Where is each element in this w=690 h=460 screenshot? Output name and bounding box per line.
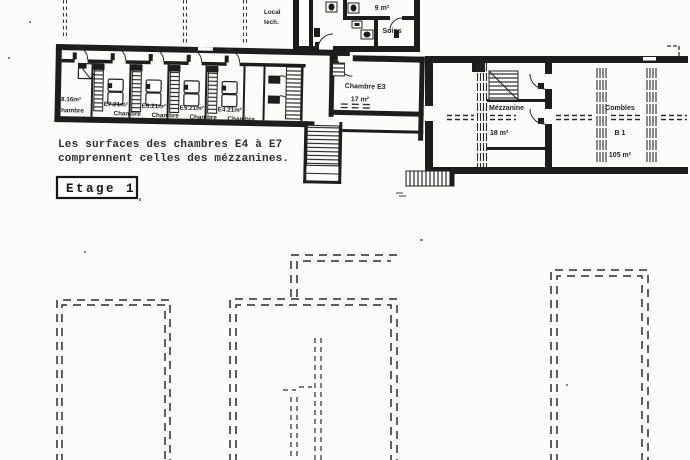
door-opening	[425, 106, 433, 121]
room-9m2-area-label: 9 m²	[375, 5, 390, 12]
room-e8-area-label: E8.16m²	[57, 96, 81, 104]
column-strip	[597, 68, 656, 163]
tie-dashes	[447, 116, 516, 120]
lower-roof-plan	[57, 255, 648, 460]
note-text: Les surfaces des chambres E4 à E7 compre…	[58, 139, 289, 165]
scanned-floorplan-page: Local tech.	[0, 0, 690, 460]
toilet-icon	[348, 3, 359, 13]
roof-outline-right-outer	[551, 270, 648, 460]
room-e5-area-label: E5.21m²	[180, 105, 204, 113]
room-e7-area-label: E7.21m²	[104, 101, 128, 109]
note-line-1: Les surfaces des chambres E4 à E7	[58, 139, 282, 151]
sink-icon	[352, 21, 362, 28]
sanitary-block: 9 m² Soins	[293, 0, 420, 52]
reference-dashed-lines	[64, 0, 247, 45]
local-tech-label-line2: tech.	[264, 19, 279, 26]
local-tech-room: Local tech.	[264, 9, 281, 26]
toilet-icon	[361, 30, 373, 39]
roof-outline-mid-projection-inner	[297, 261, 391, 297]
roof-inner-dashed-lines	[283, 338, 321, 460]
mezzanine-name-label: Mézzanine	[489, 105, 524, 112]
room-e3-area-label: 17 m²	[351, 96, 370, 103]
roof-outline-right-inner	[557, 276, 642, 460]
room-e8-name-label: Chambre	[57, 107, 85, 115]
window-notch	[198, 47, 213, 51]
window-notch	[643, 57, 656, 61]
central-staircase	[303, 121, 342, 184]
soins-room-label: Soins	[382, 28, 401, 35]
roof-outline-left-inner	[62, 305, 165, 460]
tie-dashes	[556, 116, 687, 120]
combles-name-label: Combles	[605, 105, 635, 112]
mezzanine-edge-dashes	[341, 104, 371, 108]
note-line-2: comprennent celles des mézzanines.	[58, 153, 289, 165]
mezzanine-staircase	[489, 71, 518, 100]
ladder-landings	[93, 64, 218, 73]
lower-entry-stair	[396, 171, 454, 196]
room-e5-name-label: Chambre	[189, 114, 217, 122]
toilet-icon	[326, 2, 337, 12]
room-e6-area-label: E6.21m²	[142, 103, 166, 111]
service-cells	[267, 66, 301, 119]
room-e7-name-label: Chambre	[113, 110, 141, 118]
column-strip	[478, 63, 487, 167]
roof-outline-mid-inner	[236, 305, 391, 460]
room-e3: Chambre E3 17 m²	[328, 55, 425, 141]
room-e4-area-label: E4.21m²	[218, 106, 242, 114]
right-wing: Mézzanine 18 m² Combles B 1 105 m²	[396, 46, 688, 196]
local-tech-label-line1: Local	[264, 9, 281, 16]
floor-tag-box: Etage 1	[57, 177, 137, 198]
mezzanine-area-label: 18 m²	[490, 130, 509, 137]
room-e6-name-label: Chambre	[151, 112, 179, 120]
upper-floor-plan: Local tech.	[53, 0, 688, 196]
room-e4-name-label: Chambre	[227, 116, 255, 124]
ladder-icon	[332, 63, 344, 76]
floor-tag-label: Etage 1	[66, 182, 136, 196]
combles-area-label: 105 m²	[609, 152, 632, 159]
room-e3-name-label: Chambre E3	[345, 83, 386, 91]
roof-outline-left-outer	[57, 300, 170, 460]
roof-outline-mid-outer	[230, 299, 397, 460]
floorplan-drawing: Local tech.	[0, 0, 690, 460]
combles-code-label: B 1	[615, 130, 626, 137]
